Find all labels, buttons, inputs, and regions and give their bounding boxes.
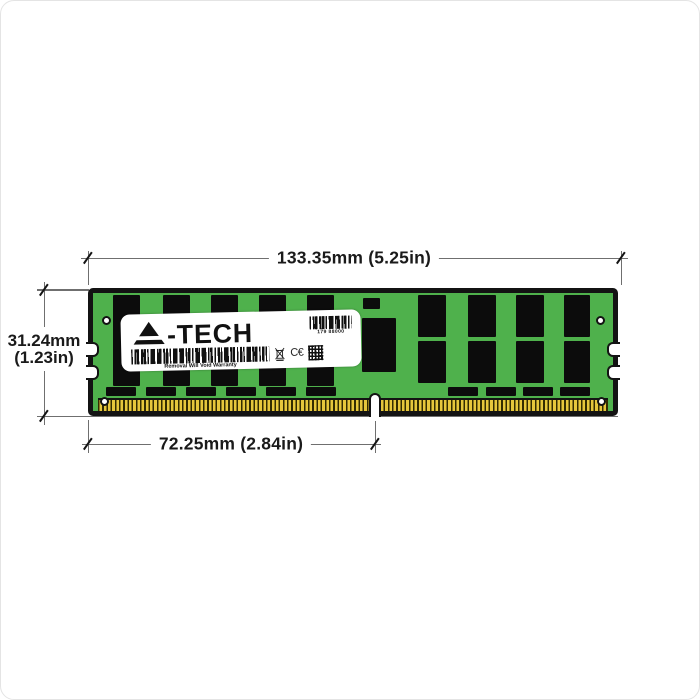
edge-notch	[86, 365, 99, 380]
passive-component	[448, 387, 478, 396]
passive-component	[306, 387, 336, 396]
weee-bin-icon	[274, 346, 285, 360]
width-dimension-label: 133.35mm (5.25in)	[269, 248, 439, 269]
serial-barcode	[309, 315, 351, 329]
product-label: -TECH 179 88000	[120, 309, 361, 371]
memory-chip	[418, 341, 446, 383]
passive-component	[186, 387, 216, 396]
logo-text: -TECH	[167, 318, 254, 347]
height-dimension-mm: 31.24mm	[2, 332, 86, 349]
warranty-barcode	[131, 346, 269, 364]
passive-component	[146, 387, 176, 396]
memory-chip	[564, 295, 590, 337]
serial-number: 179 88000	[310, 328, 352, 335]
memory-chip	[516, 295, 544, 337]
atech-logo: -TECH	[131, 317, 270, 346]
memory-chip	[564, 341, 590, 383]
height-dimension-in: (1.23in)	[2, 349, 86, 366]
mounting-hole	[100, 397, 109, 406]
height-dimension-label: 31.24mm (1.23in)	[2, 327, 86, 371]
mounting-hole	[596, 316, 605, 325]
memory-chip	[516, 341, 544, 383]
pin-width-dimension-label: 72.25mm (2.84in)	[151, 434, 311, 455]
passive-component	[106, 387, 136, 396]
passive-component	[266, 387, 296, 396]
mounting-hole	[102, 316, 111, 325]
memory-chip	[418, 295, 446, 337]
spd-chip	[363, 298, 380, 309]
passive-component	[226, 387, 256, 396]
ce-mark: C€	[290, 348, 303, 359]
passive-component	[486, 387, 516, 396]
memory-chip	[468, 295, 496, 337]
mounting-hole	[597, 397, 606, 406]
key-notch	[369, 393, 381, 417]
passive-component	[560, 387, 590, 396]
serial-block: 179 88000	[309, 315, 351, 335]
register-chip	[362, 318, 396, 372]
qr-code	[308, 345, 323, 360]
logo-triangle-a	[133, 322, 165, 345]
extension-line	[88, 420, 90, 453]
edge-notch	[86, 342, 99, 357]
gold-pins	[98, 398, 608, 411]
edge-notch	[607, 365, 620, 380]
passive-component	[523, 387, 553, 396]
pcb-surface: -TECH 179 88000	[93, 293, 613, 411]
memory-chip	[468, 341, 496, 383]
edge-notch	[607, 342, 620, 357]
product-diagram-canvas: 133.35mm (5.25in) 31.24mm (1.23in) 72.25…	[0, 0, 700, 700]
extension-line	[375, 421, 377, 453]
ram-module: -TECH 179 88000	[88, 288, 618, 416]
